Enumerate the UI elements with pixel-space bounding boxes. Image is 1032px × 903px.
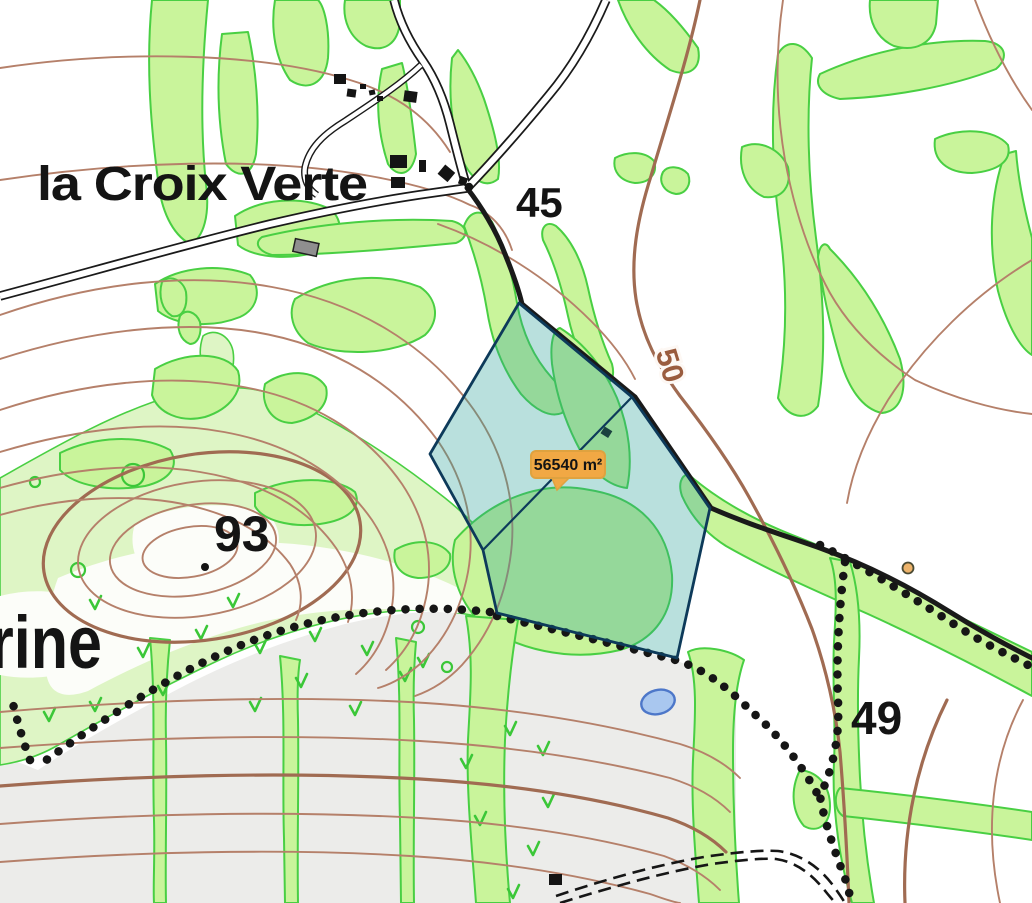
building [390, 155, 407, 168]
building [360, 84, 366, 89]
map-canvas[interactable]: la Croix Verte rine 45 93 49 50 56540 m² [0, 0, 1032, 903]
building [419, 160, 426, 172]
elevation-label-49: 49 [851, 692, 902, 744]
building [346, 88, 356, 97]
junction-dot [465, 183, 473, 191]
map-viewport[interactable]: la Croix Verte rine 45 93 49 50 56540 m² [0, 0, 1032, 903]
poi-marker-dot[interactable] [903, 563, 914, 574]
building [391, 177, 405, 188]
place-label-main: la Croix Verte [37, 158, 367, 211]
vegetation-patch [394, 542, 450, 578]
vegetation-patch [292, 278, 435, 352]
spot-height-dot [201, 563, 209, 571]
vegetation-patch [60, 439, 174, 488]
building [403, 90, 417, 103]
vegetation-patch [935, 131, 1009, 173]
place-label-partial: rine [0, 601, 102, 684]
vegetation-patch [661, 167, 689, 194]
vegetation-patch [219, 32, 258, 174]
building [549, 874, 562, 885]
building [377, 96, 383, 101]
building [334, 74, 346, 84]
area-value-label: 56540 m² [534, 457, 603, 474]
elevation-label-93: 93 [214, 506, 270, 562]
elevation-label-45: 45 [516, 179, 563, 226]
